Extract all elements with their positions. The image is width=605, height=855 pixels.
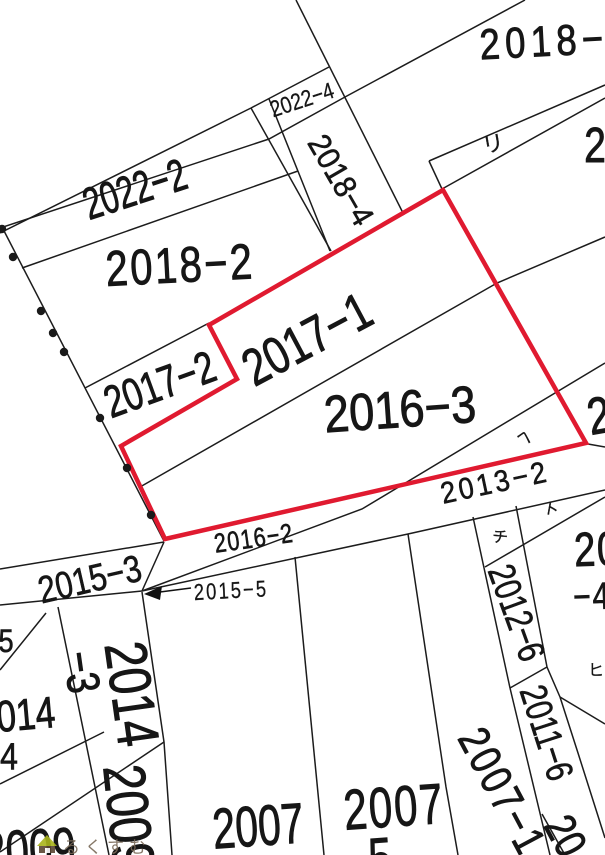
svg-text:チ: チ [491,529,508,547]
svg-text:−4: −4 [572,575,605,618]
svg-text:2: 2 [584,119,605,173]
svg-text:20: 20 [573,523,605,578]
svg-text:2007: 2007 [210,791,306,855]
svg-text:2015−5: 2015−5 [193,576,269,605]
svg-text:2018−2: 2018−2 [104,233,256,297]
svg-text:−5: −5 [342,826,394,855]
svg-text:ト: ト [542,500,561,520]
svg-text:るくすむ: るくすむ [63,838,151,855]
svg-text:2016−3: 2016−3 [322,376,478,444]
svg-text:ヒ: ヒ [588,663,604,680]
svg-text:5: 5 [0,624,14,660]
svg-text:2018−: 2018− [478,15,605,69]
svg-text:リ: リ [480,130,506,158]
svg-text:−3: −3 [53,648,110,697]
svg-text:4: 4 [0,736,18,778]
